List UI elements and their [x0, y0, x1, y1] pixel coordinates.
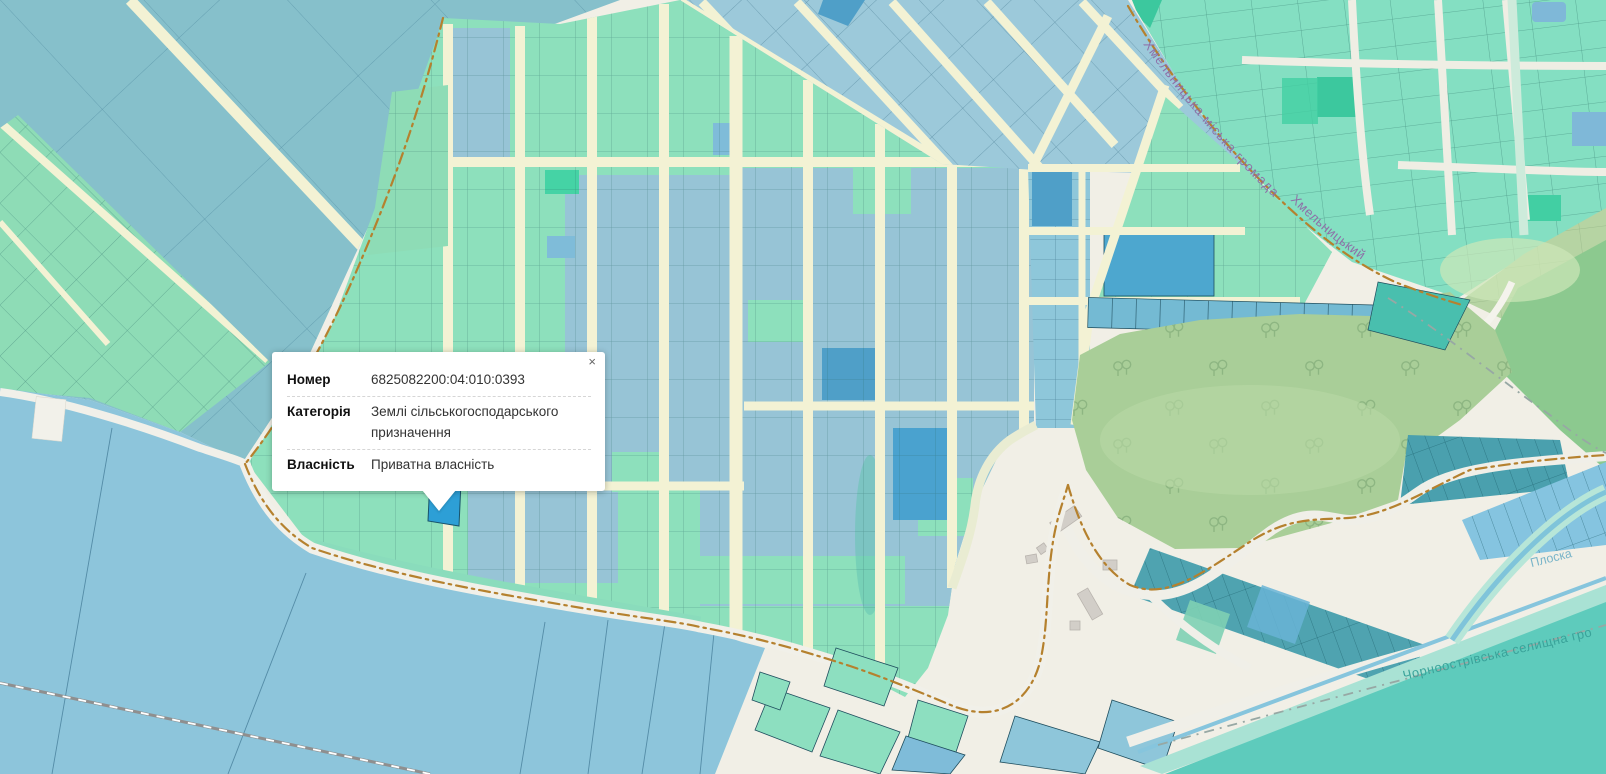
dark-blue-parcels: [1104, 234, 1214, 296]
parcel-info-popup: × Номер 6825082200:04:010:0393 Категорія…: [272, 352, 605, 491]
field-value: Землі сільськогосподарського призначення: [371, 401, 591, 444]
map-canvas[interactable]: Хмельницька міська громада Хмельницький …: [0, 0, 1606, 774]
dark-blue-parcels: [1032, 172, 1072, 226]
field-value: Приватна власність: [371, 454, 591, 476]
blue-parcel: [1572, 112, 1606, 146]
close-icon[interactable]: ×: [588, 355, 596, 368]
popup-row-number: Номер 6825082200:04:010:0393: [287, 365, 591, 396]
field-label: Категорія: [287, 401, 371, 444]
field-value: 6825082200:04:010:0393: [371, 369, 591, 391]
field-label: Номер: [287, 369, 371, 391]
pond: [1532, 2, 1566, 22]
cadastral-map-viewport[interactable]: Хмельницька міська громада Хмельницький …: [0, 0, 1606, 774]
popup-anchor-arrow: [422, 490, 456, 511]
pier: [32, 397, 66, 442]
teal-parcel: [1282, 78, 1318, 124]
field-label: Власність: [287, 454, 371, 476]
popup-row-category: Категорія Землі сільськогосподарського п…: [287, 396, 591, 449]
popup-row-ownership: Власність Приватна власність: [287, 449, 591, 481]
